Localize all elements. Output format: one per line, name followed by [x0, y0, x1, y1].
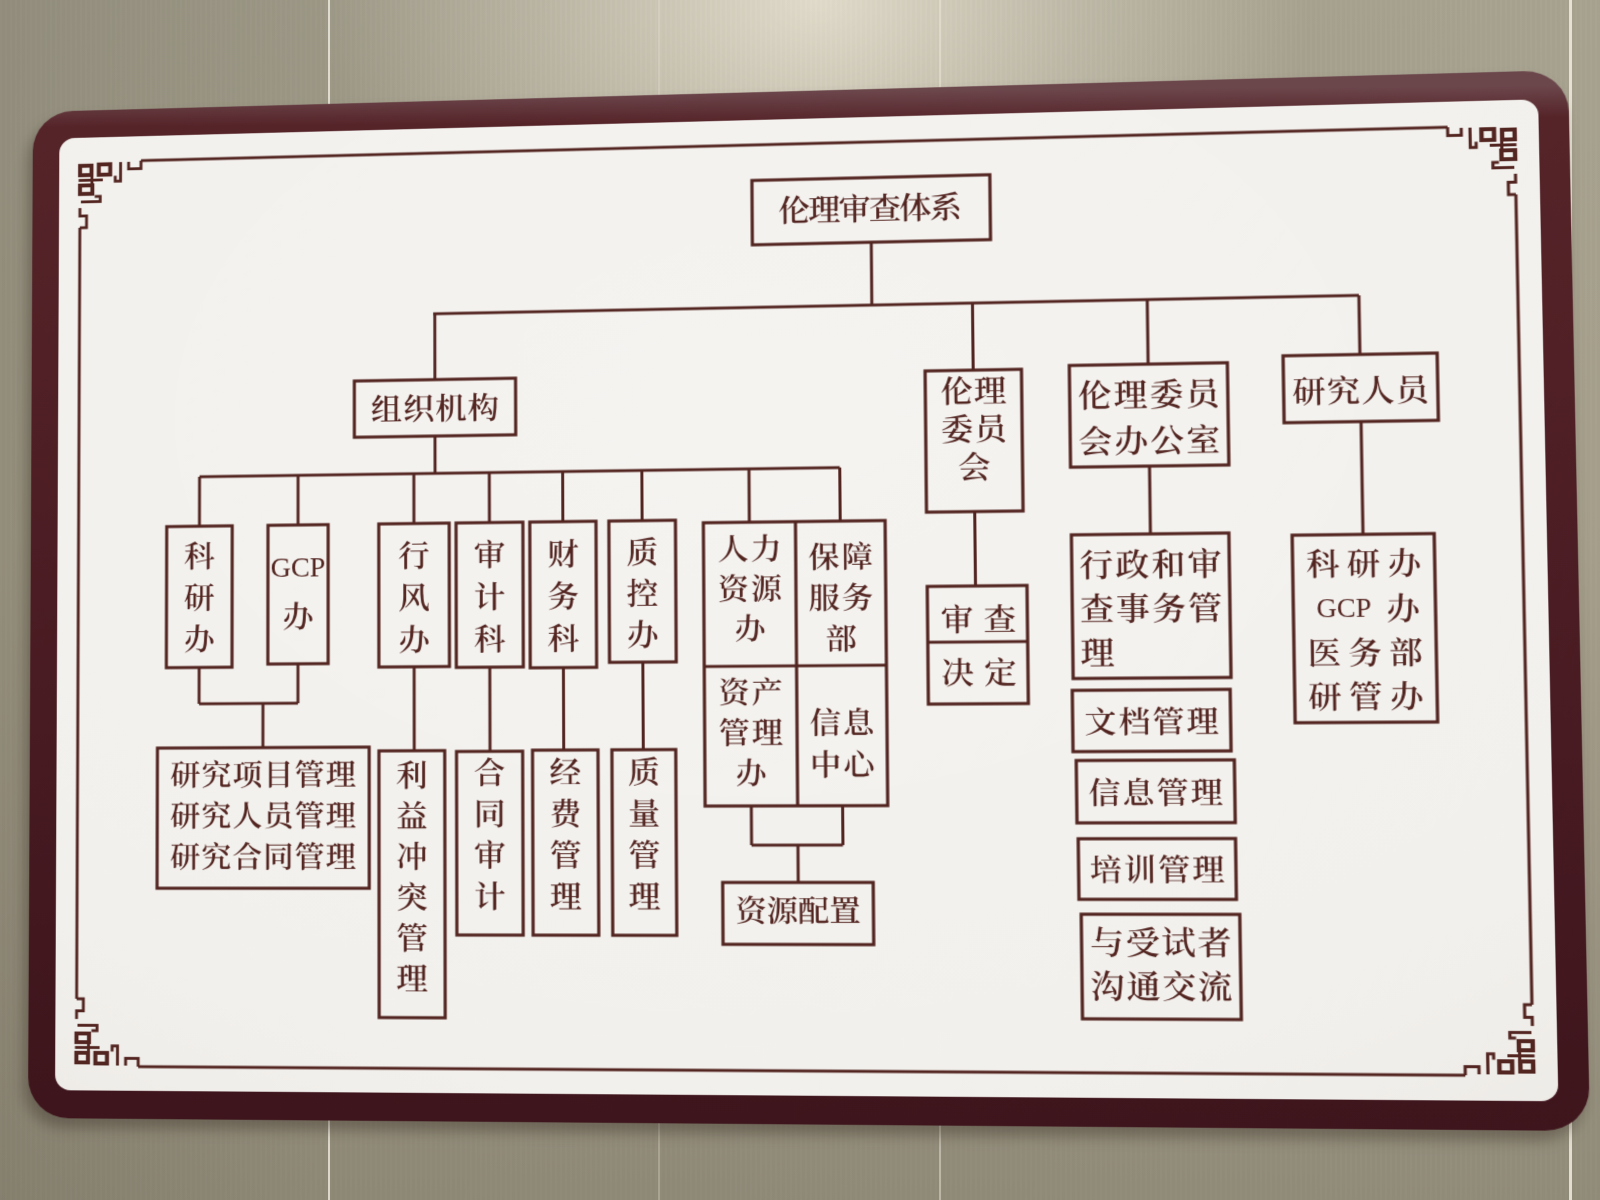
svg-text:GCP: GCP	[1316, 593, 1371, 623]
svg-text:GCP: GCP	[271, 551, 326, 582]
